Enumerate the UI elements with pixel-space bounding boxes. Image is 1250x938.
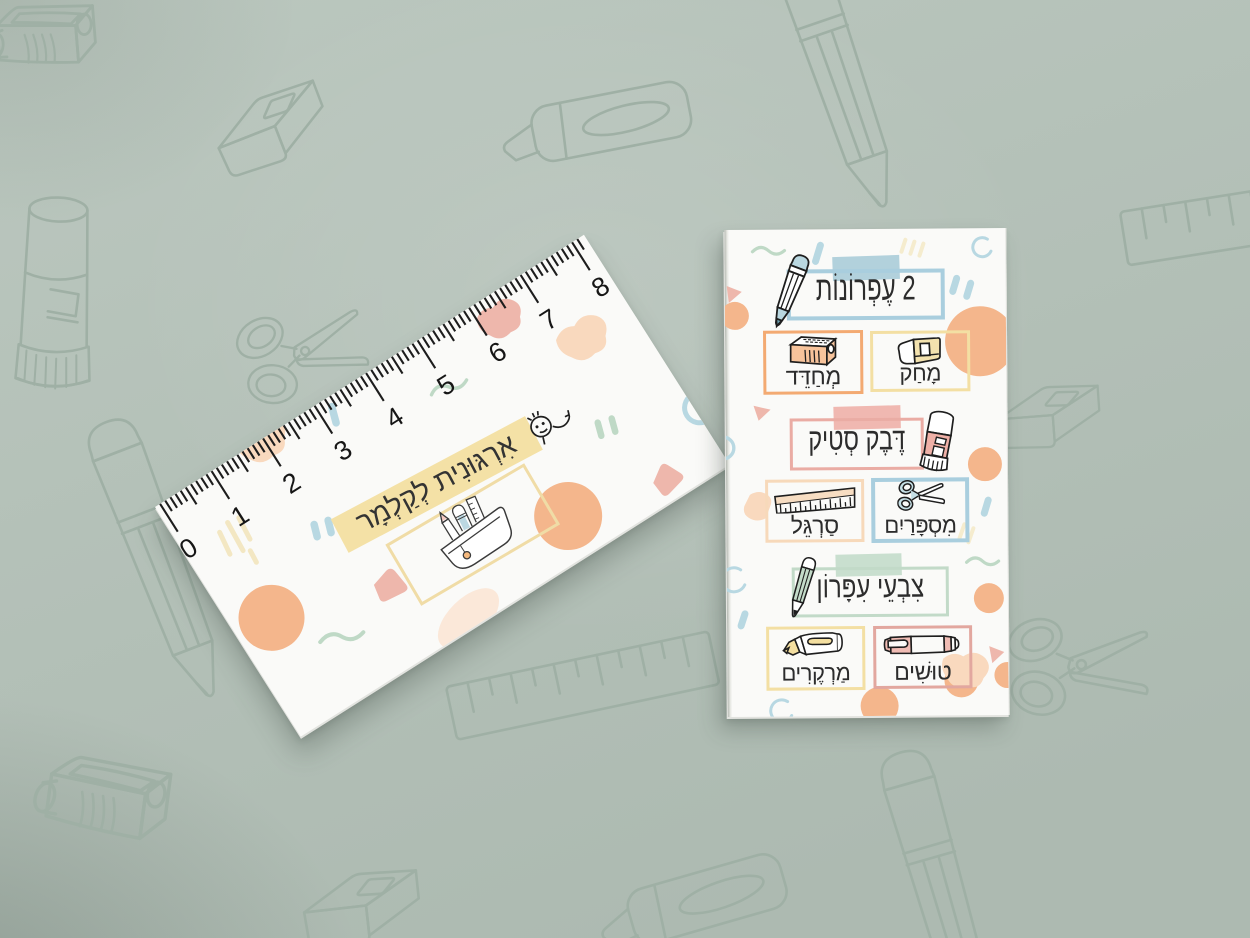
svg-text:7: 7: [535, 303, 564, 336]
svg-text:2: 2: [277, 466, 306, 499]
svg-text:4: 4: [380, 401, 409, 434]
svg-text:5: 5: [432, 368, 461, 401]
svg-text:6: 6: [483, 336, 512, 369]
svg-text:1: 1: [226, 499, 255, 532]
svg-text:3: 3: [329, 434, 358, 467]
